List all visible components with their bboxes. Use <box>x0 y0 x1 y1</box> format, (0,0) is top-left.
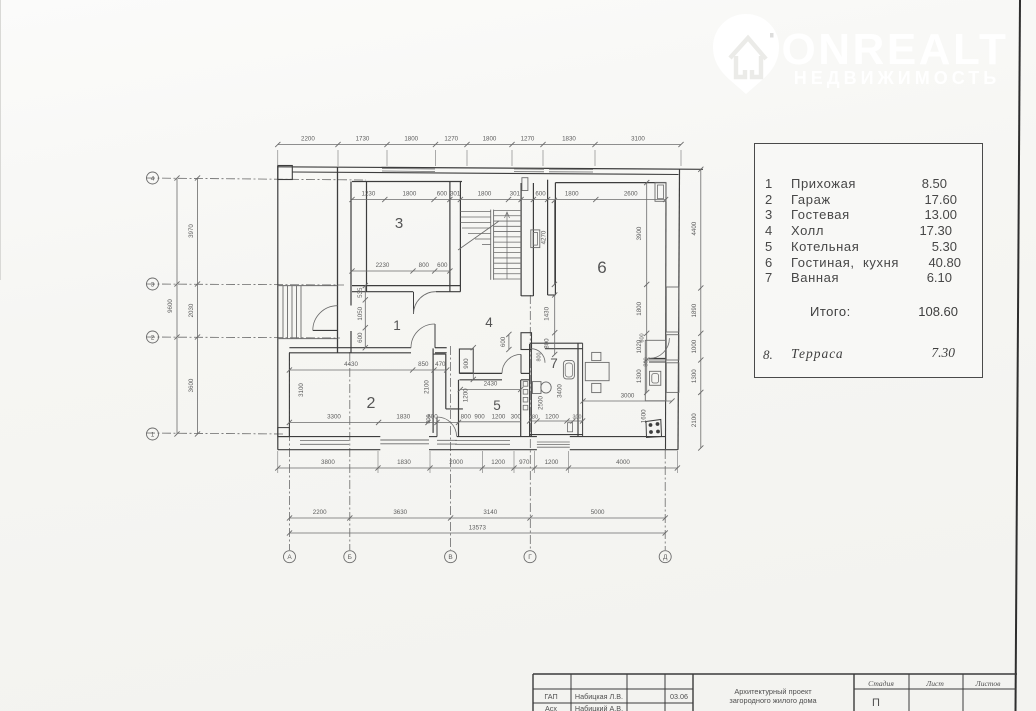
svg-text:П: П <box>872 697 880 709</box>
svg-text:Набицкий А.В.: Набицкий А.В. <box>575 704 623 711</box>
svg-text:Лист: Лист <box>925 679 944 688</box>
svg-text:Стадия: Стадия <box>868 679 894 688</box>
svg-text:Набицкая Л.В.: Набицкая Л.В. <box>575 692 623 701</box>
svg-text:03.06: 03.06 <box>670 692 688 701</box>
svg-text:Асх: Асх <box>545 704 557 711</box>
svg-text:ГАП: ГАП <box>544 692 557 701</box>
svg-text:Архитектурный проект: Архитектурный проект <box>734 687 812 696</box>
svg-text:Листов: Листов <box>975 679 1002 688</box>
svg-text:загородного жилого дома: загородного жилого дома <box>729 696 817 705</box>
